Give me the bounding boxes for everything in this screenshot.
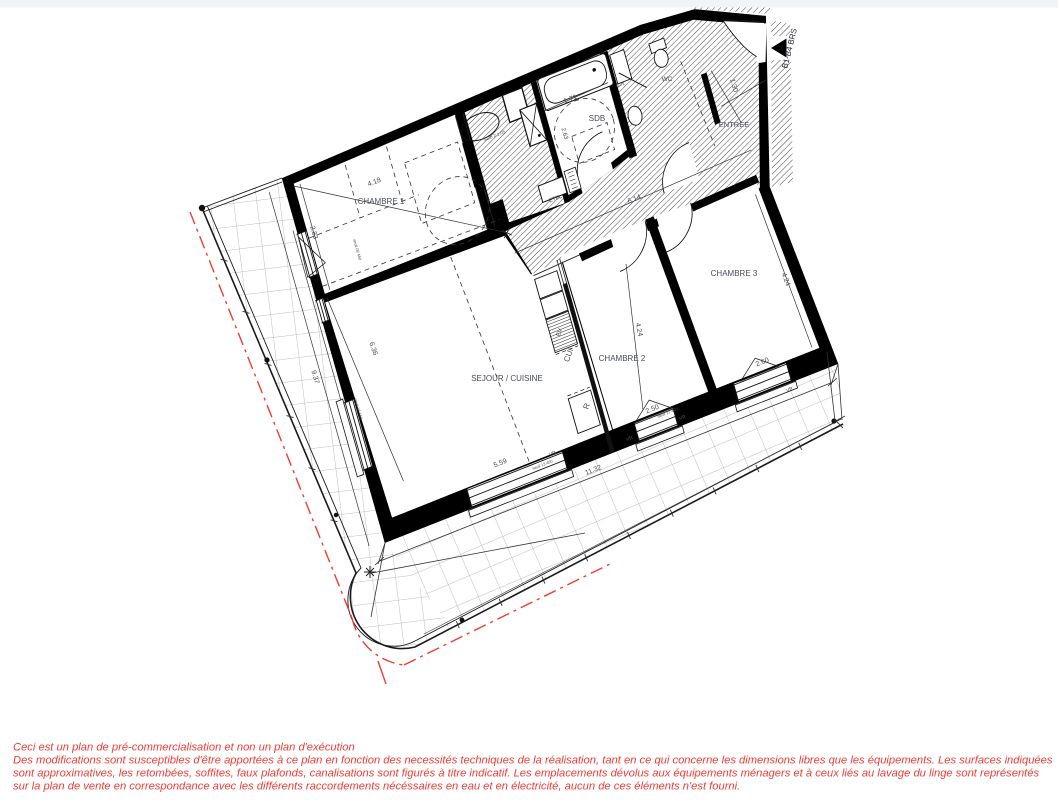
svg-text:CHAMBRE 3: CHAMBRE 3 (711, 269, 758, 278)
svg-text:SEJOUR / CUISINE: SEJOUR / CUISINE (471, 374, 543, 383)
svg-text:WC: WC (662, 76, 673, 83)
svg-text:CHAMBRE 2: CHAMBRE 2 (599, 354, 646, 363)
svg-text:SDB: SDB (589, 114, 605, 123)
svg-text:CHAMBRE 1: CHAMBRE 1 (358, 197, 405, 206)
svg-text:Des modifications sont suscept: Des modifications sont susceptibles d'êt… (13, 755, 1053, 767)
svg-text:sont approximatives, les retom: sont approximatives, les retombées, soff… (13, 768, 1039, 780)
svg-text:Ceci est un plan de pré-commer: Ceci est un plan de pré-commercialisatio… (13, 742, 355, 754)
svg-text:sur la plan de vente en corres: sur la plan de vente en correspondance a… (13, 781, 740, 793)
svg-text:ENTREE: ENTREE (719, 120, 749, 129)
